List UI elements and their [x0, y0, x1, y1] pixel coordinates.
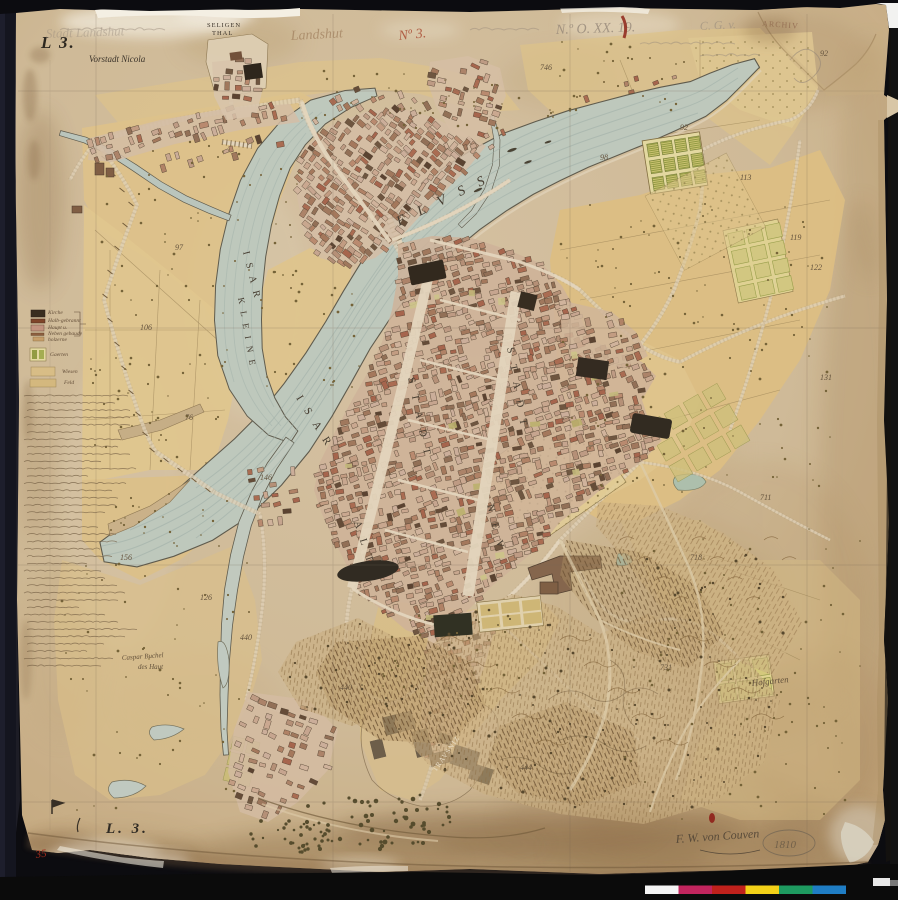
svg-text:35: 35	[34, 847, 48, 861]
